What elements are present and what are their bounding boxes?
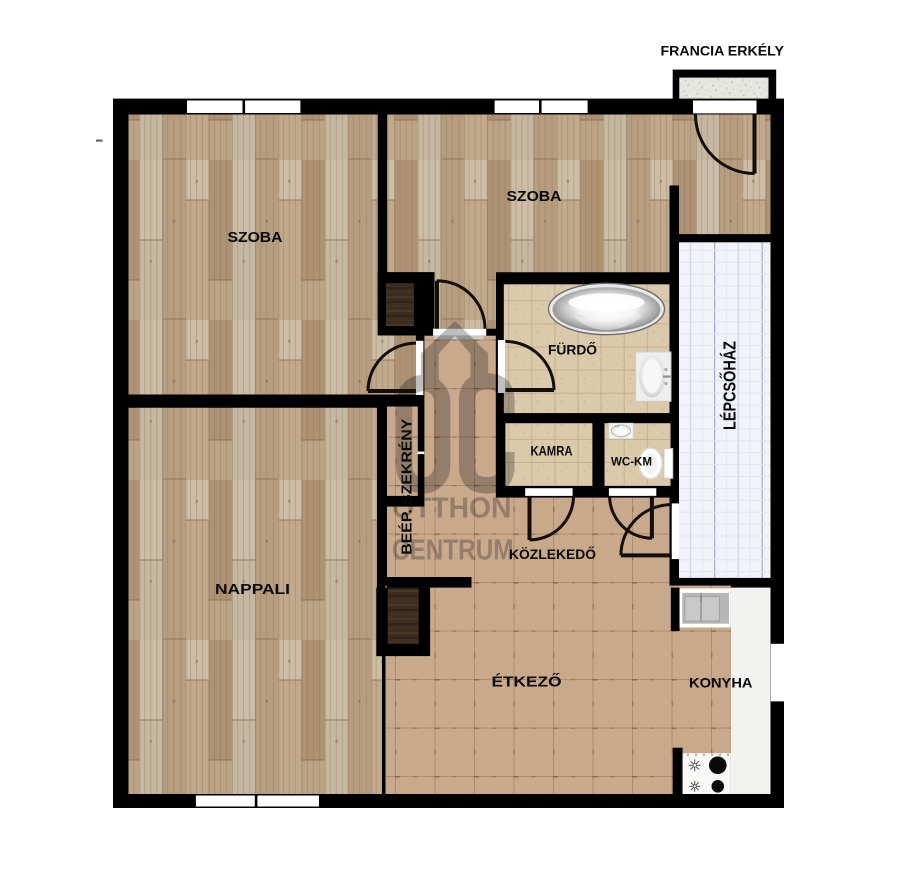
svg-text:FÜRDŐ: FÜRDŐ bbox=[548, 341, 597, 358]
svg-text:BEÉP. SZEKRÉNY: BEÉP. SZEKRÉNY bbox=[399, 419, 416, 555]
svg-text:KONYHA: KONYHA bbox=[689, 676, 753, 691]
svg-text:LÉPCSŐHÁZ: LÉPCSŐHÁZ bbox=[719, 341, 740, 430]
svg-text:NAPPALI: NAPPALI bbox=[215, 582, 290, 598]
svg-text:WC-KM: WC-KM bbox=[611, 457, 652, 469]
svg-text:SZOBA: SZOBA bbox=[228, 230, 284, 246]
svg-text:FRANCIA ERKÉLY: FRANCIA ERKÉLY bbox=[661, 44, 785, 59]
svg-text:KÖZLEKEDŐ: KÖZLEKEDŐ bbox=[509, 547, 596, 562]
svg-text:KAMRA: KAMRA bbox=[531, 444, 573, 459]
svg-text:SZOBA: SZOBA bbox=[507, 189, 563, 205]
svg-text:ÉTKEZŐ: ÉTKEZŐ bbox=[492, 673, 562, 691]
